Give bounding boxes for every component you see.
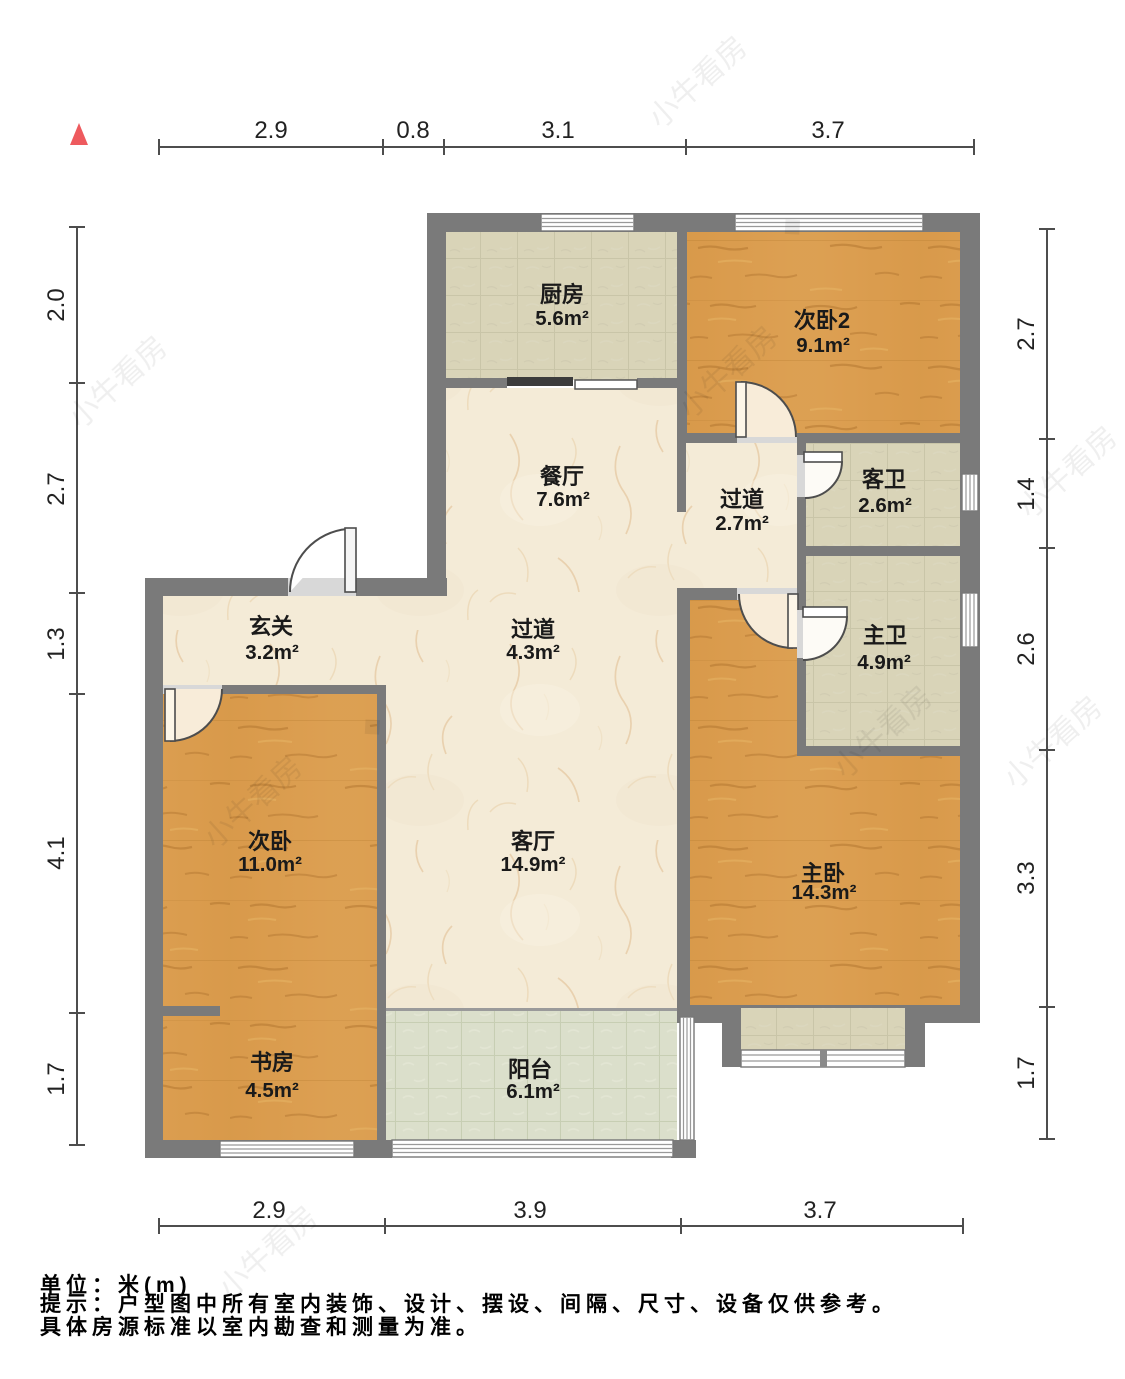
svg-text:客卫: 客卫	[862, 467, 906, 492]
svg-text:4.3m²: 4.3m²	[506, 641, 560, 664]
svg-text:2.6m²: 2.6m²	[858, 494, 912, 517]
svg-text:2.6: 2.6	[1013, 632, 1040, 665]
svg-text:3.2m²: 3.2m²	[245, 641, 299, 664]
svg-text:5.6m²: 5.6m²	[535, 307, 589, 330]
svg-text:书房: 书房	[250, 1050, 294, 1075]
svg-text:1.7: 1.7	[1013, 1056, 1040, 1089]
svg-text:客厅: 客厅	[511, 829, 555, 854]
svg-text:3.9: 3.9	[513, 1197, 546, 1224]
svg-text:过道: 过道	[511, 617, 555, 642]
svg-text:4.5m²: 4.5m²	[245, 1079, 299, 1102]
svg-text:具体房源标准以室内勘查和测量为准。: 具体房源标准以室内勘查和测量为准。	[40, 1315, 482, 1339]
svg-text:3.3: 3.3	[1013, 861, 1040, 894]
svg-text:提示：户型图中所有室内装饰、设计、摆设、间隔、尺寸、设备仅供: 提示：户型图中所有室内装饰、设计、摆设、间隔、尺寸、设备仅供参考。	[40, 1292, 898, 1316]
svg-text:餐厅: 餐厅	[540, 464, 584, 489]
svg-text:次卧: 次卧	[248, 829, 292, 854]
svg-text:阳台: 阳台	[508, 1057, 552, 1082]
svg-text:9.1m²: 9.1m²	[796, 334, 850, 357]
svg-text:11.0m²: 11.0m²	[238, 853, 302, 876]
svg-text:14.9m²: 14.9m²	[501, 853, 566, 876]
svg-text:2.0: 2.0	[43, 288, 70, 321]
svg-text:6.1m²: 6.1m²	[506, 1080, 560, 1103]
svg-text:3.1: 3.1	[541, 117, 574, 144]
svg-text:14.3m²: 14.3m²	[792, 881, 857, 904]
svg-text:主卫: 主卫	[863, 623, 907, 648]
svg-text:2.7m²: 2.7m²	[715, 512, 769, 535]
svg-text:3.7: 3.7	[811, 117, 844, 144]
svg-text:7.6m²: 7.6m²	[536, 488, 590, 511]
svg-text:2.7: 2.7	[1013, 317, 1040, 350]
svg-text:厨房: 厨房	[540, 282, 584, 307]
svg-text:过道: 过道	[720, 487, 764, 512]
svg-text:0.8: 0.8	[396, 117, 429, 144]
svg-text:2.7: 2.7	[43, 472, 70, 505]
svg-text:次卧2: 次卧2	[794, 308, 850, 333]
svg-text:1.3: 1.3	[43, 627, 70, 660]
svg-text:1.7: 1.7	[43, 1062, 70, 1095]
svg-text:2.9: 2.9	[254, 117, 287, 144]
svg-text:4.1: 4.1	[43, 836, 70, 869]
svg-text:4.9m²: 4.9m²	[857, 651, 911, 674]
svg-text:玄关: 玄关	[249, 614, 293, 639]
svg-text:3.7: 3.7	[803, 1197, 836, 1224]
